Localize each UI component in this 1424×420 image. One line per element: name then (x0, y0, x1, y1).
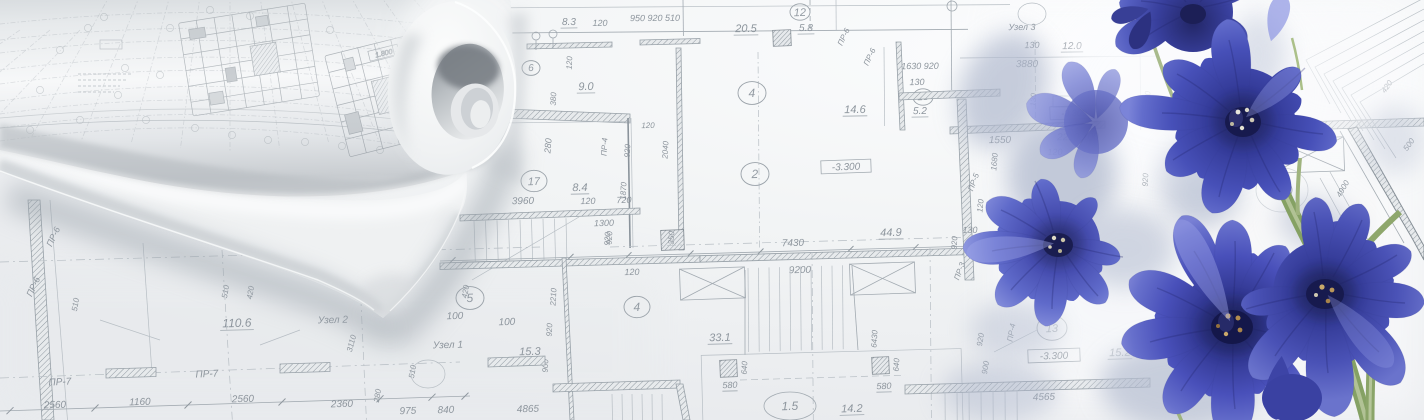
svg-text:720: 720 (616, 195, 631, 205)
svg-text:130: 130 (909, 77, 924, 87)
svg-text:920: 920 (623, 143, 633, 157)
svg-text:2560: 2560 (43, 400, 67, 412)
svg-text:Узел 3: Узел 3 (1007, 22, 1035, 32)
svg-text:4: 4 (748, 86, 755, 100)
svg-text:950 920 510: 950 920 510 (630, 13, 680, 23)
svg-text:4865: 4865 (517, 404, 540, 416)
svg-text:280: 280 (542, 138, 553, 155)
svg-text:380: 380 (549, 92, 558, 106)
svg-text:120: 120 (641, 121, 655, 130)
svg-text:2360: 2360 (330, 399, 354, 411)
svg-text:2210: 2210 (548, 287, 558, 307)
svg-text:120: 120 (565, 56, 574, 70)
svg-text:2040: 2040 (660, 140, 670, 160)
svg-text:14.6: 14.6 (844, 104, 866, 116)
svg-text:130: 130 (962, 225, 977, 235)
svg-text:8.4: 8.4 (572, 182, 588, 194)
svg-text:44.9: 44.9 (880, 227, 902, 239)
svg-text:4: 4 (633, 300, 640, 314)
svg-text:12: 12 (794, 7, 807, 19)
svg-text:Узел 1: Узел 1 (432, 340, 463, 352)
svg-text:ПР-4: ПР-4 (600, 137, 610, 156)
svg-text:9.0: 9.0 (578, 81, 594, 93)
svg-text:20.5: 20.5 (734, 23, 757, 35)
svg-text:1.5: 1.5 (781, 399, 798, 414)
svg-text:6430: 6430 (870, 329, 880, 348)
svg-text:2: 2 (750, 167, 758, 181)
svg-text:1680: 1680 (989, 152, 1000, 171)
svg-text:120: 120 (624, 267, 639, 277)
svg-text:1300: 1300 (594, 218, 614, 228)
svg-text:640: 640 (740, 360, 750, 374)
svg-text:920: 920 (545, 322, 555, 336)
svg-text:9200: 9200 (789, 265, 812, 277)
svg-text:120: 120 (975, 198, 985, 213)
svg-text:2560: 2560 (231, 394, 255, 406)
svg-text:1160: 1160 (129, 397, 151, 409)
svg-text:14.2: 14.2 (841, 403, 863, 416)
svg-text:ПР-7: ПР-7 (48, 376, 72, 388)
svg-text:6: 6 (528, 63, 534, 74)
svg-text:3960: 3960 (512, 196, 535, 207)
svg-text:-3.300: -3.300 (832, 161, 861, 173)
svg-text:580: 580 (722, 380, 737, 390)
svg-text:920: 920 (950, 235, 960, 249)
svg-text:120: 120 (592, 18, 607, 28)
svg-text:975: 975 (399, 406, 416, 418)
svg-text:5.8: 5.8 (799, 23, 813, 34)
svg-text:120: 120 (580, 196, 595, 206)
svg-text:ПР-7: ПР-7 (195, 368, 219, 380)
svg-text:5.2: 5.2 (913, 106, 927, 117)
svg-text:580: 580 (876, 381, 891, 391)
svg-text:640: 640 (892, 357, 902, 371)
svg-text:100: 100 (498, 317, 515, 328)
svg-text:840: 840 (437, 405, 454, 417)
svg-text:100: 100 (446, 311, 463, 322)
svg-text:920: 920 (603, 231, 613, 245)
svg-text:17: 17 (528, 176, 542, 188)
svg-text:8.3: 8.3 (562, 17, 576, 28)
svg-text:33.1: 33.1 (709, 332, 731, 345)
svg-text:7430: 7430 (782, 238, 805, 249)
svg-text:350: 350 (667, 230, 677, 244)
svg-text:1630 920: 1630 920 (901, 61, 939, 71)
